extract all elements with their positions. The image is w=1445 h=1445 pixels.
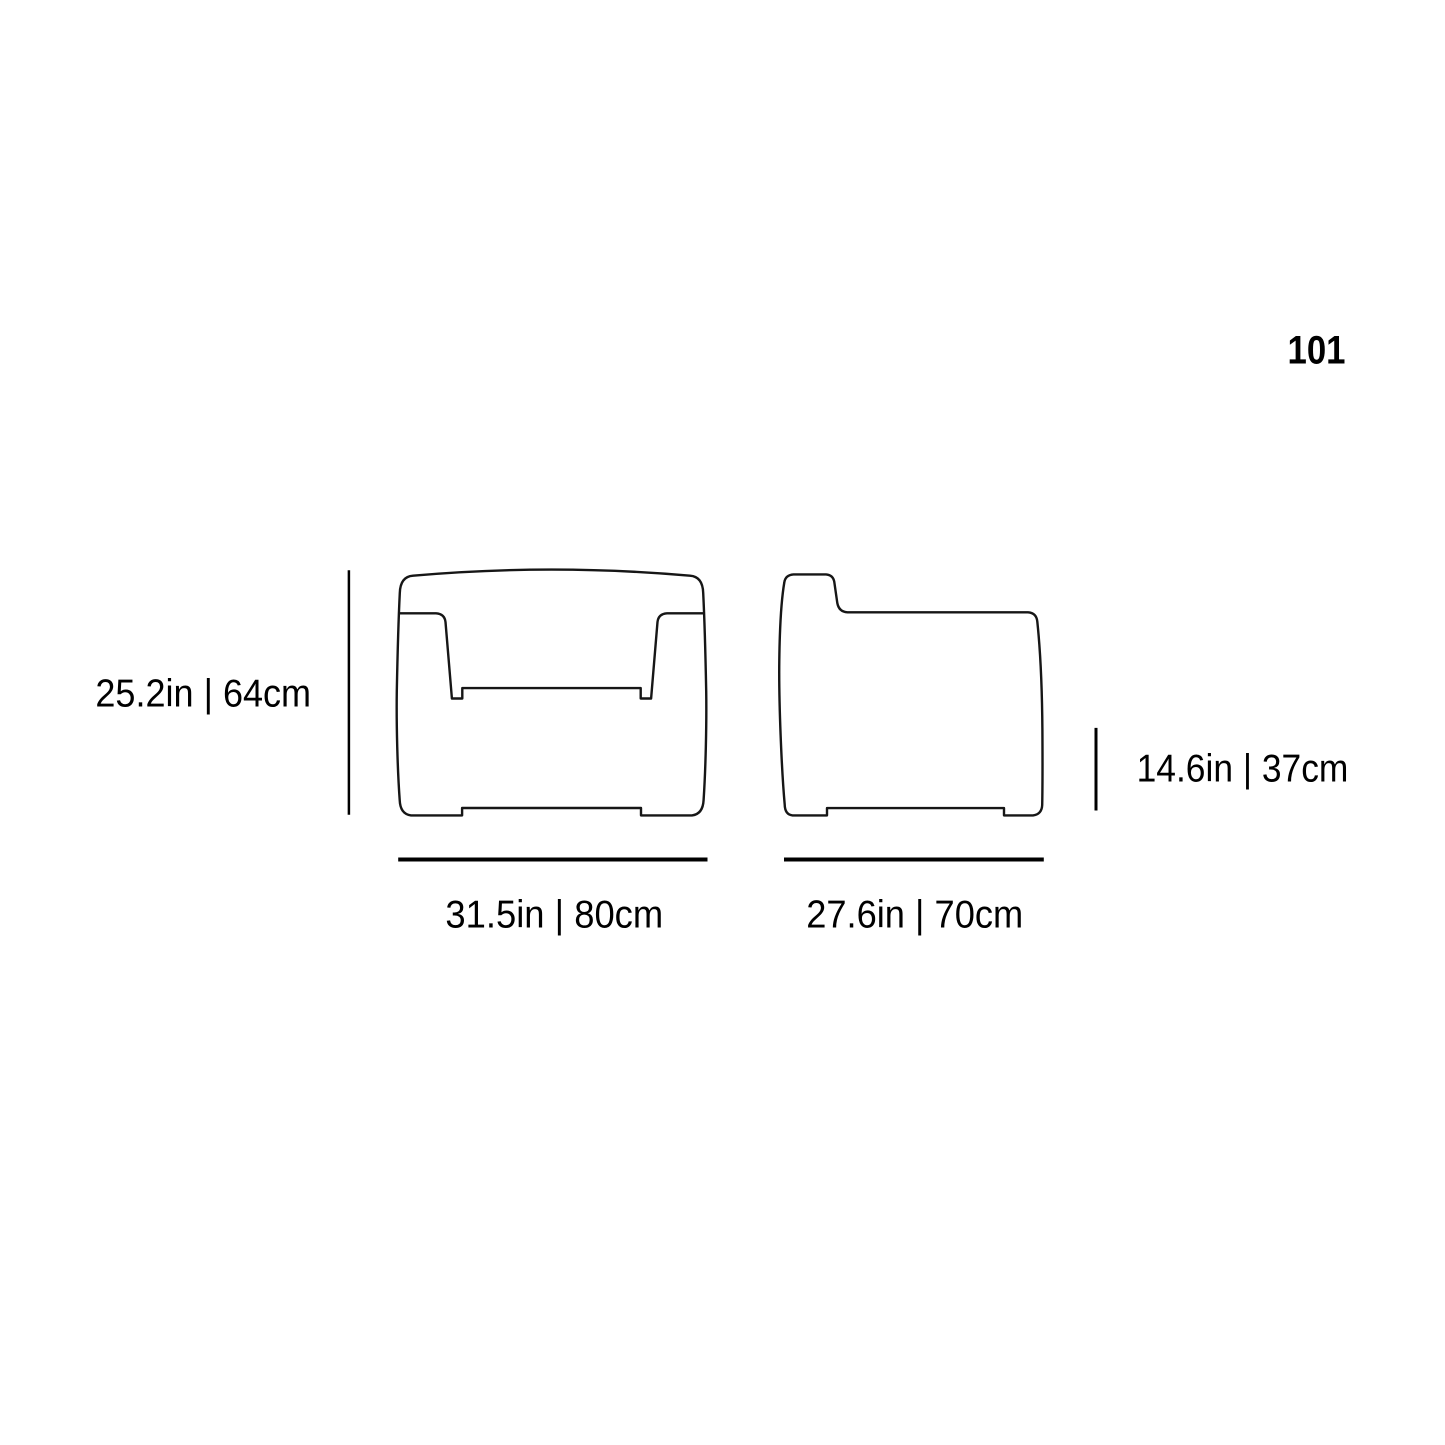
svg-text:101: 101 bbox=[1288, 328, 1346, 372]
svg-text:31.5in | 80cm: 31.5in | 80cm bbox=[445, 892, 663, 936]
svg-text:14.6in | 37cm: 14.6in | 37cm bbox=[1137, 747, 1349, 791]
svg-text:25.2in | 64cm: 25.2in | 64cm bbox=[95, 671, 311, 715]
svg-text:27.6in | 70cm: 27.6in | 70cm bbox=[806, 893, 1023, 937]
